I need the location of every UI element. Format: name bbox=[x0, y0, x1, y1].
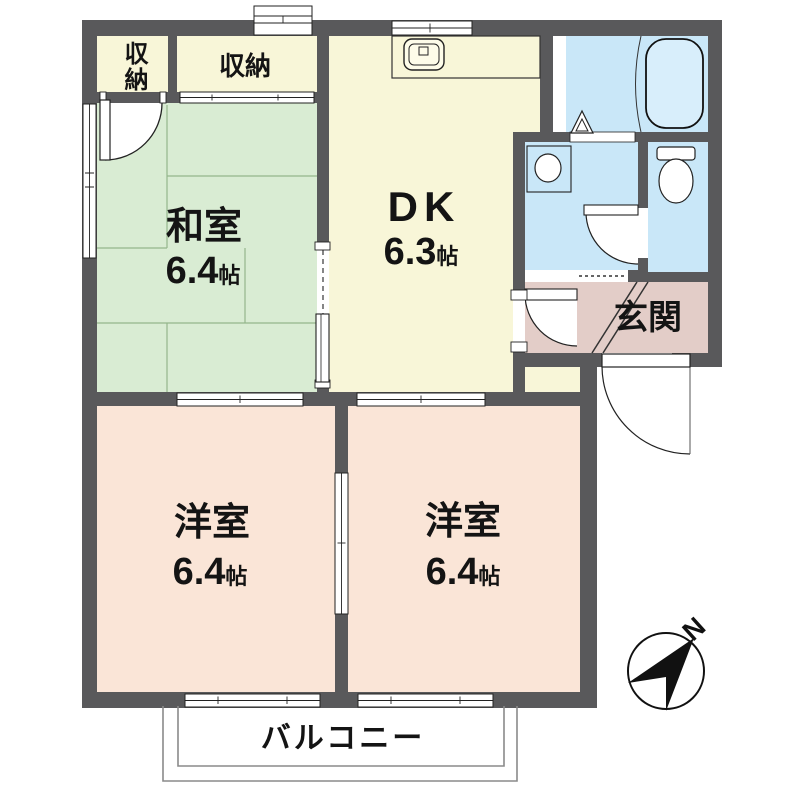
kitchen-counter-icon bbox=[392, 36, 540, 78]
vent-window-icon bbox=[254, 6, 312, 35]
bathtub-icon bbox=[636, 36, 704, 132]
plan-linework: N bbox=[0, 0, 800, 800]
label-western-right-name: 洋室 bbox=[425, 503, 501, 541]
kitchen-window-icon bbox=[392, 21, 472, 35]
washbasin-icon bbox=[527, 146, 571, 192]
label-closet-wide: 収納 bbox=[219, 53, 271, 79]
label-genkan: 玄関 bbox=[614, 301, 682, 335]
dk-hall-opening bbox=[511, 290, 527, 352]
floorplan: N 収納 収納 和室 6.4帖 DK 6.3帖 洋室 6.4帖 洋室 6.4帖 … bbox=[0, 0, 800, 800]
label-washitsu-name: 和室 bbox=[166, 208, 242, 246]
entrance-door-icon bbox=[602, 354, 690, 454]
toilet-door-icon bbox=[584, 205, 648, 264]
label-dk-size: 6.3帖 bbox=[384, 233, 459, 271]
western-left-window-icon bbox=[185, 694, 320, 707]
label-closet-small: 収納 bbox=[121, 41, 145, 93]
washitsu-dk-sliding-door-icon bbox=[315, 242, 330, 388]
closet-sliding-door-icon bbox=[180, 92, 314, 103]
label-washitsu-size: 6.4帖 bbox=[166, 252, 241, 290]
label-balcony: バルコニー bbox=[261, 724, 425, 754]
label-western-left-name: 洋室 bbox=[174, 504, 250, 542]
washitsu-window-icon bbox=[83, 104, 96, 258]
dk-western-slider-icon bbox=[357, 393, 485, 406]
western-divider-slider-icon bbox=[335, 473, 348, 614]
western-right-window-icon bbox=[358, 694, 493, 707]
closet-door-icon bbox=[100, 92, 166, 160]
label-dk-name: DK bbox=[388, 186, 461, 228]
label-western-left-size: 6.4帖 bbox=[173, 553, 248, 591]
compass-icon: N bbox=[628, 611, 711, 711]
bath-folding-door-icon bbox=[570, 111, 635, 142]
washroom-door-icon bbox=[525, 270, 628, 346]
toilet-icon bbox=[657, 147, 695, 203]
washitsu-western-slider-icon bbox=[177, 393, 303, 406]
label-western-right-size: 6.4帖 bbox=[426, 553, 501, 591]
